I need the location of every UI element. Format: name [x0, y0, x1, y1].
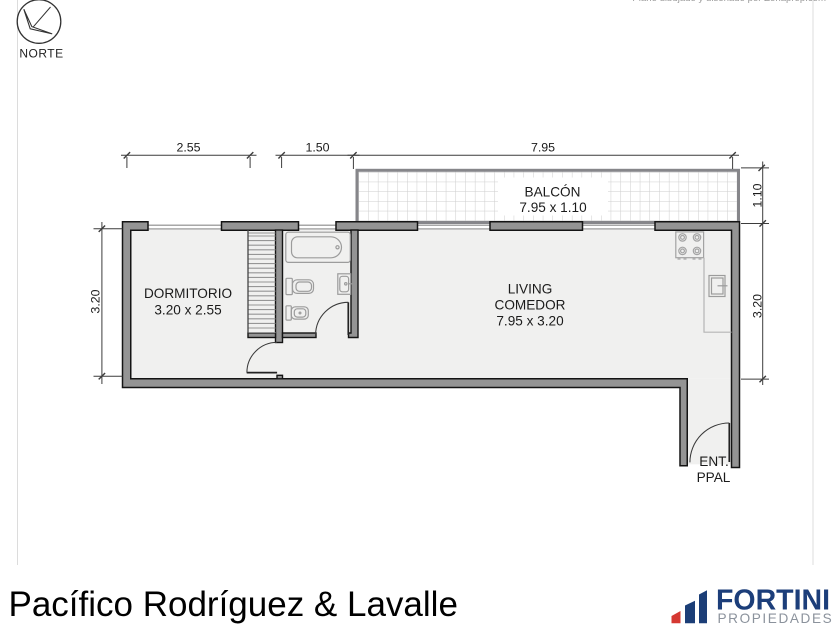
svg-text:PROPIEDADES: PROPIEDADES [718, 611, 834, 626]
svg-text:LIVING: LIVING [508, 282, 553, 297]
svg-text:1.50: 1.50 [305, 141, 329, 155]
svg-text:1.10: 1.10 [750, 183, 764, 207]
svg-text:Pacífico Rodríguez & Lavalle: Pacífico Rodríguez & Lavalle [9, 585, 458, 624]
svg-text:COMEDOR: COMEDOR [495, 298, 566, 313]
svg-text:3.20 x 2.55: 3.20 x 2.55 [154, 303, 221, 318]
svg-text:NORTE: NORTE [19, 47, 63, 61]
svg-text:7.95 x 3.20: 7.95 x 3.20 [496, 314, 564, 329]
svg-text:3.20: 3.20 [89, 289, 103, 313]
svg-text:PPAL: PPAL [697, 470, 731, 485]
svg-text:7.95: 7.95 [531, 141, 555, 155]
svg-text:7.95 x 1.10: 7.95 x 1.10 [519, 200, 587, 215]
svg-text:2.55: 2.55 [176, 141, 200, 155]
svg-text:BALCÓN: BALCÓN [525, 185, 581, 200]
svg-text:DORMITORIO: DORMITORIO [144, 286, 232, 301]
svg-text:ENT.: ENT. [699, 454, 728, 469]
svg-text:3.20: 3.20 [750, 294, 764, 318]
svg-text:Plano dibujado y diseñado por: Plano dibujado y diseñado por Zonaprop.c… [632, 0, 826, 4]
